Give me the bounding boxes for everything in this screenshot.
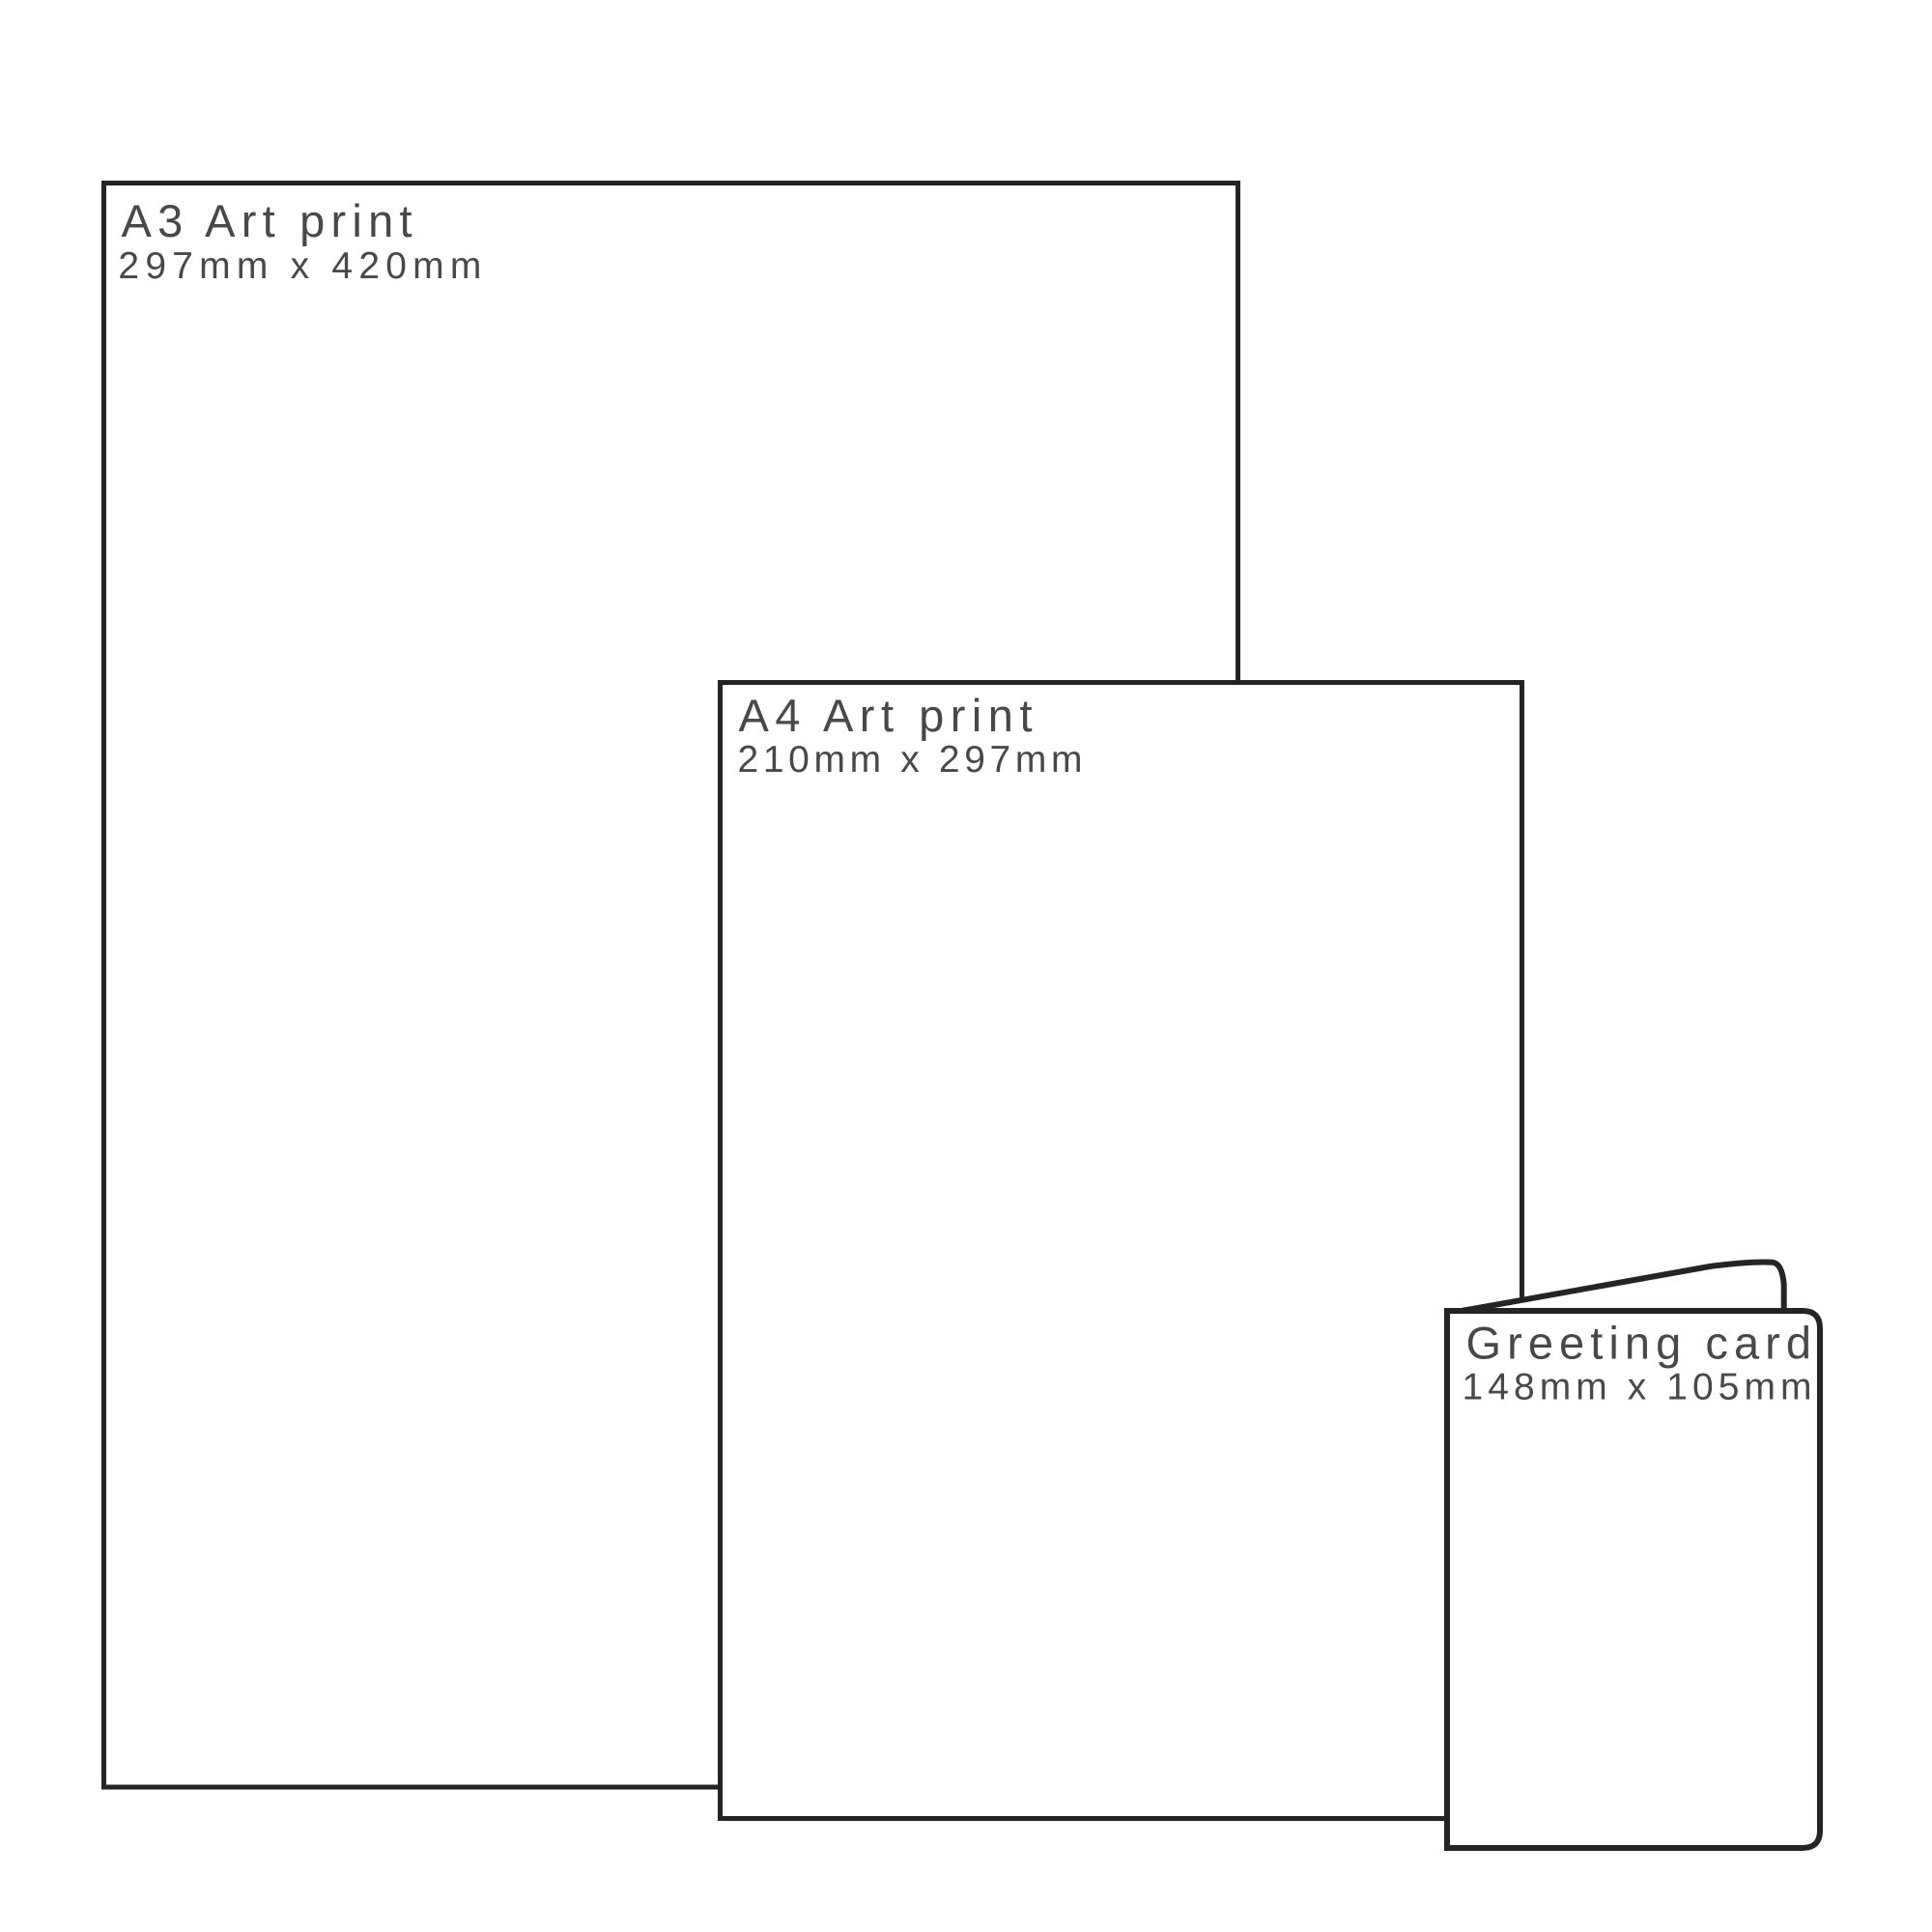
svg-text:297mm x 420mm: 297mm x 420mm <box>118 245 481 287</box>
svg-text:A4 Art print: A4 Art print <box>739 690 1033 741</box>
svg-text:A3 Art print: A3 Art print <box>122 195 412 246</box>
svg-text:148mm x 105mm: 148mm x 105mm <box>1463 1367 1812 1408</box>
svg-text:210mm x 297mm: 210mm x 297mm <box>738 739 1083 781</box>
